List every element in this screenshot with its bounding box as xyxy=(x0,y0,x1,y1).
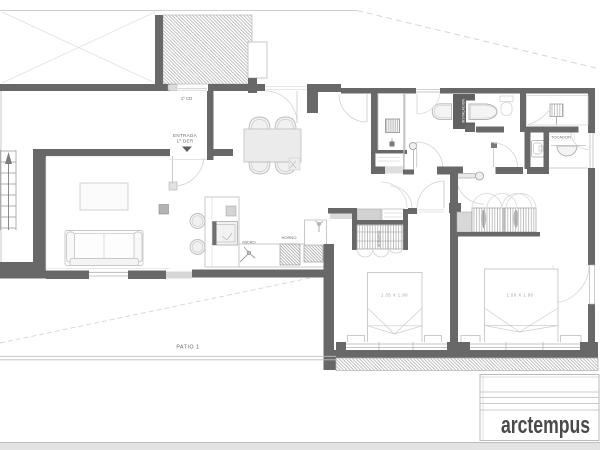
svg-text:TOCADOR: TOCADOR xyxy=(551,135,571,140)
svg-text:1º CD: 1º CD xyxy=(181,96,193,101)
svg-text:PATIO 1: PATIO 1 xyxy=(176,345,199,351)
svg-text:1.35 X 1.90: 1.35 X 1.90 xyxy=(381,293,408,298)
svg-text:INSTALACION: INSTALACION xyxy=(462,98,466,123)
svg-text:ENTRADA: ENTRADA xyxy=(173,133,198,138)
svg-text:arctempus: arctempus xyxy=(501,412,590,439)
svg-text:HORNO: HORNO xyxy=(282,235,297,240)
svg-text:ARMARIO: ARMARIO xyxy=(377,231,381,248)
svg-text:1º DER: 1º DER xyxy=(176,139,193,144)
svg-text:1.50 X 1.90: 1.50 X 1.90 xyxy=(507,293,534,298)
svg-text:MICRO: MICRO xyxy=(242,240,255,245)
